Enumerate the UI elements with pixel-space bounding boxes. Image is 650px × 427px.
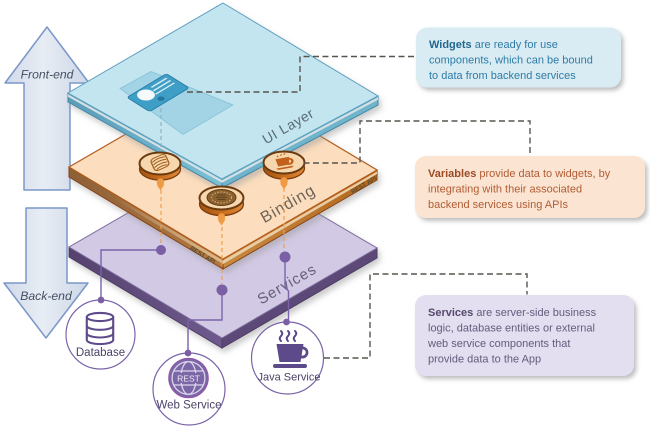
- svg-text:Variables provide data to widg: Variables provide data to widgets, by: [428, 168, 611, 180]
- svg-text:web service components that: web service components that: [427, 338, 570, 350]
- svg-text:Database: Database: [76, 347, 125, 359]
- svg-text:Widgets are ready for use: Widgets are ready for use: [429, 39, 558, 51]
- svg-text:Front-end: Front-end: [21, 68, 75, 82]
- svg-text:backend services using APIs: backend services using APIs: [428, 199, 569, 211]
- svg-text:REST: REST: [177, 374, 200, 384]
- svg-text:Web Service: Web Service: [157, 400, 222, 412]
- svg-text:integrating with their associa: integrating with their associated: [428, 184, 582, 196]
- svg-text:Java Service: Java Service: [258, 372, 321, 384]
- svg-text:logic, database entities or ex: logic, database entities or external: [428, 323, 595, 335]
- svg-text:to data from backend services: to data from backend services: [429, 70, 576, 82]
- svg-text:components, which can be bound: components, which can be bound: [429, 55, 593, 67]
- svg-text:Services are server-side busin: Services are server-side business: [428, 307, 597, 319]
- svg-text:Back-end: Back-end: [20, 289, 73, 303]
- svg-text:provide data to the App: provide data to the App: [428, 354, 541, 366]
